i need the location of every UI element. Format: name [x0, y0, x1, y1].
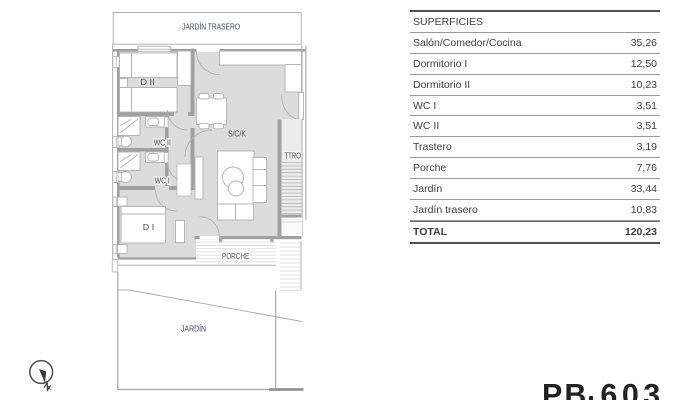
- svg-text:D II: D II: [140, 78, 155, 87]
- svg-text:D I: D I: [143, 223, 155, 232]
- svg-text:WC II: WC II: [154, 139, 171, 148]
- svg-text:PORCHE: PORCHE: [222, 252, 249, 261]
- svg-text:JARDÍN TRASERO: JARDÍN TRASERO: [182, 23, 240, 32]
- svg-text:WC I: WC I: [155, 177, 170, 186]
- svg-text:S/C/K: S/C/K: [228, 130, 246, 139]
- svg-text:JARDÍN: JARDÍN: [181, 325, 206, 334]
- svg-text:TTRO: TTRO: [285, 152, 301, 161]
